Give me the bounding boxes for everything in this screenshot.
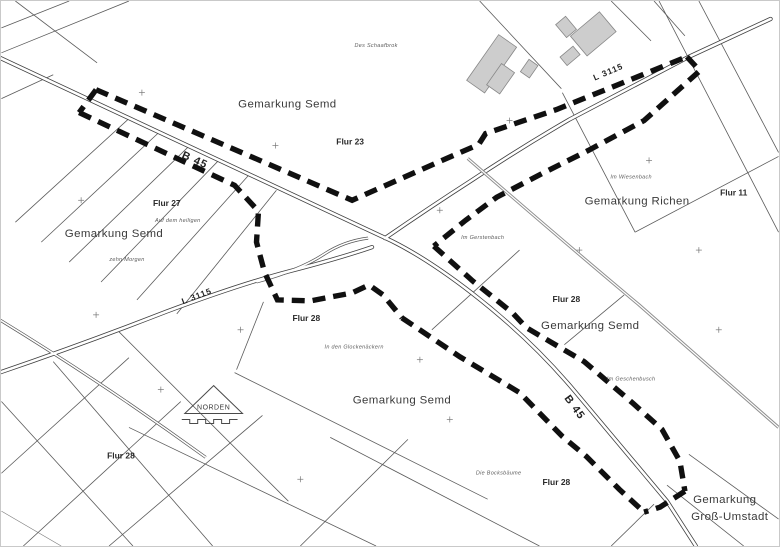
field-name-die-bocksbaeume: Die Bocksbäume — [476, 470, 522, 476]
north-arrow: NORDEN — [182, 386, 243, 424]
flur-label-27: Flur 27 — [153, 198, 181, 208]
field-name-im-geschenbusch: Im Geschenbusch — [607, 377, 656, 383]
buildings — [467, 12, 616, 94]
flur-label-11: Flur 11 — [720, 187, 748, 197]
region-label-semd-left: Gemarkung Semd — [65, 228, 163, 240]
parcel-lines — [1, 1, 778, 546]
road-label-l3115-ne: L 3115 — [592, 61, 625, 83]
road-b45-casing — [1, 55, 696, 546]
region-label-semd-bottom: Gemarkung Semd — [353, 395, 451, 407]
flur-label-28-right: Flur 28 — [552, 294, 580, 304]
region-label-gross-umstadt-line2: Groß-Umstadt — [691, 511, 769, 523]
cadastral-map-sheet: NORDEN Gemarkung Semd Gemarkung Semd Gem… — [0, 0, 780, 547]
road-label-b45-lower: B 45 — [562, 393, 588, 422]
region-label-richen: Gemarkung Richen — [585, 195, 690, 207]
field-name-im-wiesenbach: Im Wiesenbach — [610, 174, 652, 180]
survey-cross-marks — [78, 90, 722, 483]
region-label-semd-right: Gemarkung Semd — [541, 320, 639, 332]
flur-label-23: Flur 23 — [336, 136, 364, 146]
field-name-des-schaafbrok: Des Schaafbrok — [355, 43, 398, 49]
region-label-semd-top: Gemarkung Semd — [238, 99, 336, 111]
field-name-auf-dem-heiligen: Auf dem heiligen — [154, 218, 201, 224]
flur-label-28-bottom: Flur 28 — [543, 477, 571, 487]
road-labels: B 45 B 45 L 3115 L 3115 — [180, 61, 625, 422]
flur-labels: Flur 23 Flur 27 Flur 11 Flur 28 Flur 28 … — [107, 136, 748, 487]
field-name-glockenaeckern: In den Glockenäckern — [325, 345, 384, 351]
field-name-im-gerstenbach: Im Gerstenbach — [461, 235, 504, 241]
flur-label-28-center: Flur 28 — [292, 313, 320, 323]
north-arrow-label: NORDEN — [197, 405, 230, 412]
map-canvas: NORDEN Gemarkung Semd Gemarkung Semd Gem… — [1, 1, 779, 546]
field-name-zehn-morgen: zehn Morgen — [108, 257, 144, 263]
project-boundary-dashed — [79, 57, 700, 512]
flur-label-28-bottom-left: Flur 28 — [107, 450, 135, 460]
region-label-gross-umstadt-line1: Gemarkung — [693, 494, 756, 506]
